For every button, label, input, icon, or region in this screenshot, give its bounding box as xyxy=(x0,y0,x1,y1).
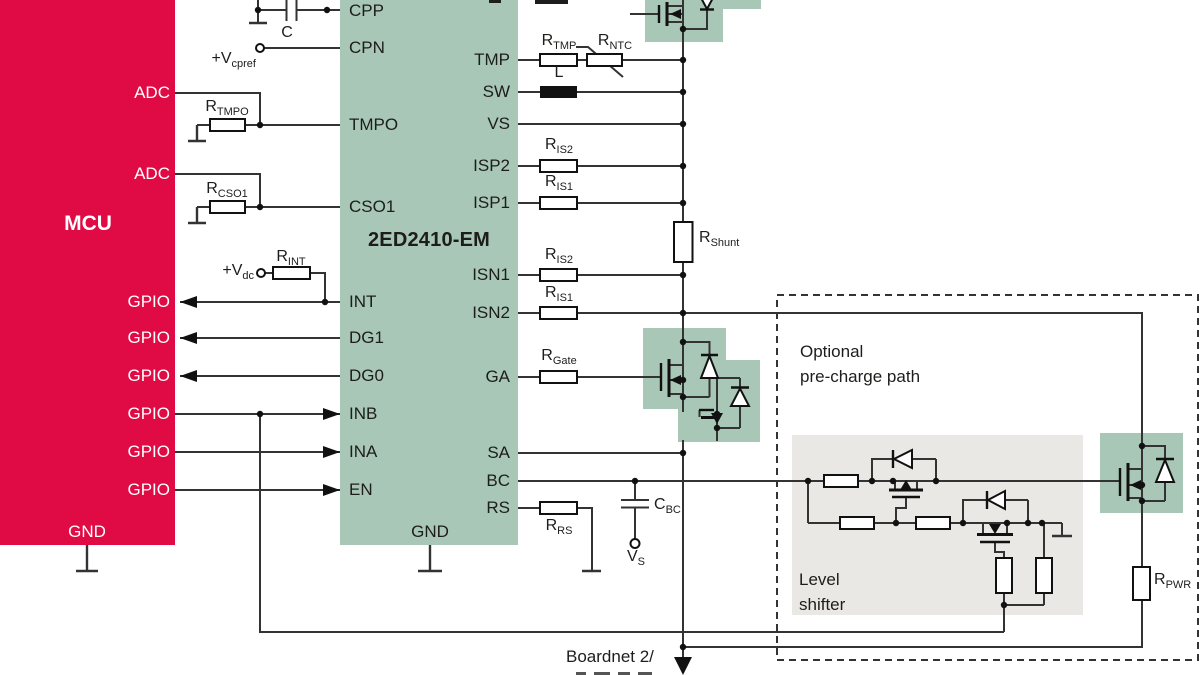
resistor-r-int xyxy=(273,267,310,279)
chip-title: 2ED2410-EM xyxy=(340,229,518,251)
resistor-r-is1-isn2 xyxy=(540,307,577,319)
chip-pin-int: INT xyxy=(349,291,376,313)
ground-chip xyxy=(418,545,442,571)
mcu-title: MCU xyxy=(56,213,120,235)
resistor-r-cso1 xyxy=(210,201,245,213)
mcu-pin-gpio-dg0: GPIO xyxy=(108,365,170,387)
label-r-int: RINT xyxy=(256,247,326,267)
resistor-r-tmpo xyxy=(210,119,245,131)
label-r-shunt: RShunt xyxy=(699,228,739,248)
resistor-ls-5 xyxy=(1036,558,1052,593)
mcu-pin-adc1: ADC xyxy=(108,82,170,104)
resistor-r-gate xyxy=(540,371,577,383)
chip-pin-rs: RS xyxy=(420,497,510,519)
resistor-ls-2 xyxy=(840,517,874,529)
chip-pin-ga: GA xyxy=(420,366,510,388)
optional-precharge-line1: Optional xyxy=(800,339,920,364)
arrow-boardnet-down xyxy=(674,657,692,675)
label-r-rs: RRS xyxy=(524,516,594,536)
arrow-int-to-mcu xyxy=(180,296,197,308)
mcu-pin-gpio-ina: GPIO xyxy=(108,441,170,463)
resistor-r-is2-isn1 xyxy=(540,269,577,281)
arrow-dg1-to-mcu xyxy=(180,332,197,344)
label-r-is1-b: RIS1 xyxy=(524,283,594,303)
arrow-ina-to-chip xyxy=(323,446,340,458)
terminal-v-cpref xyxy=(256,44,264,52)
chip-pin-isn1: ISN1 xyxy=(420,264,510,286)
chip-pin-cso1: CSO1 xyxy=(349,196,395,218)
cropped-fragments xyxy=(489,0,652,675)
chip-pin-en: EN xyxy=(349,479,373,501)
chip-pin-sa: SA xyxy=(420,442,510,464)
label-r-is2-a: RIS2 xyxy=(524,135,594,155)
mcu-pin-gpio-int: GPIO xyxy=(108,291,170,313)
chip-pin-dg1: DG1 xyxy=(349,327,384,349)
arrow-inb-to-chip xyxy=(323,408,340,420)
label-r-tmpo: RTMPO xyxy=(192,97,262,117)
schematic-graphics xyxy=(0,0,1200,675)
resistor-ls-3 xyxy=(916,517,950,529)
chip-gnd-label: GND xyxy=(400,521,460,543)
chip-pin-tmpo: TMPO xyxy=(349,114,398,136)
chip-pin-tmp: TMP xyxy=(420,49,510,71)
mcu-gnd-label: GND xyxy=(57,521,117,543)
chip-pin-cpp: CPP xyxy=(349,0,384,22)
chip-pin-bc: BC xyxy=(420,470,510,492)
resistor-ls-1 xyxy=(824,475,858,487)
chip-pin-inb: INB xyxy=(349,403,377,425)
optional-precharge-line2: pre-charge path xyxy=(800,364,920,389)
level-shifter-line1: Level xyxy=(799,567,845,592)
mcu-pin-gpio-en: GPIO xyxy=(108,479,170,501)
label-r-gate: RGate xyxy=(524,346,594,366)
ground-r-tmpo xyxy=(188,125,206,141)
label-r-is1-a: RIS1 xyxy=(524,172,594,192)
label-v-dc: +Vdc xyxy=(174,261,254,281)
label-l: L xyxy=(544,63,574,83)
resistor-r-pwr xyxy=(1133,567,1150,600)
resistor-r-is2-isp2 xyxy=(540,160,577,172)
label-r-pwr: RPWR xyxy=(1154,570,1191,590)
label-r-is2-b: RIS2 xyxy=(524,245,594,265)
label-v-s: VS xyxy=(617,547,655,567)
wire-cbc xyxy=(621,481,649,539)
chip-pin-isp2: ISP2 xyxy=(420,155,510,177)
resistor-r-ntc xyxy=(587,54,622,66)
label-r-ntc: RNTC xyxy=(580,31,650,51)
chip-pin-sw: SW xyxy=(420,81,510,103)
chip-pin-ina: INA xyxy=(349,441,377,463)
level-shifter-caption: Level shifter xyxy=(799,567,845,617)
diodes xyxy=(700,0,1174,509)
arrow-dg0-to-mcu xyxy=(180,370,197,382)
level-shifter-line2: shifter xyxy=(799,592,845,617)
chip-pin-cpn: CPN xyxy=(349,37,385,59)
ground-mcu xyxy=(76,545,98,571)
resistor-r-shunt xyxy=(674,222,693,262)
schematic-canvas: ADC ADC MCU GPIO GPIO GPIO GPIO GPIO GPI… xyxy=(0,0,1200,675)
terminal-v-dc xyxy=(257,269,265,277)
mosfet-box-top-2 xyxy=(723,0,761,9)
label-r-cso1: RCSO1 xyxy=(192,179,262,199)
chip-pin-dg0: DG0 xyxy=(349,365,384,387)
mcu-pin-adc2: ADC xyxy=(108,163,170,185)
boardnet-caption: Boardnet 2/ xyxy=(566,646,654,668)
resistor-r-rs xyxy=(540,502,577,514)
inductor-l xyxy=(540,86,577,98)
chip-pin-isn2: ISN2 xyxy=(420,302,510,324)
chip-pin-isp1: ISP1 xyxy=(420,192,510,214)
optional-precharge-caption: Optional pre-charge path xyxy=(800,339,920,389)
mcu-pin-gpio-inb: GPIO xyxy=(108,403,170,425)
chip-pin-vs: VS xyxy=(420,113,510,135)
label-v-cpref: +Vcpref xyxy=(176,49,256,69)
arrow-en-to-chip xyxy=(323,484,340,496)
resistor-r-is1-isp1 xyxy=(540,197,577,209)
label-c-bc: CBC xyxy=(654,495,681,515)
resistor-ls-4 xyxy=(996,558,1012,593)
mcu-pin-gpio-dg1: GPIO xyxy=(108,327,170,349)
label-c: C xyxy=(277,23,297,43)
ground-r-cso1 xyxy=(188,207,206,223)
